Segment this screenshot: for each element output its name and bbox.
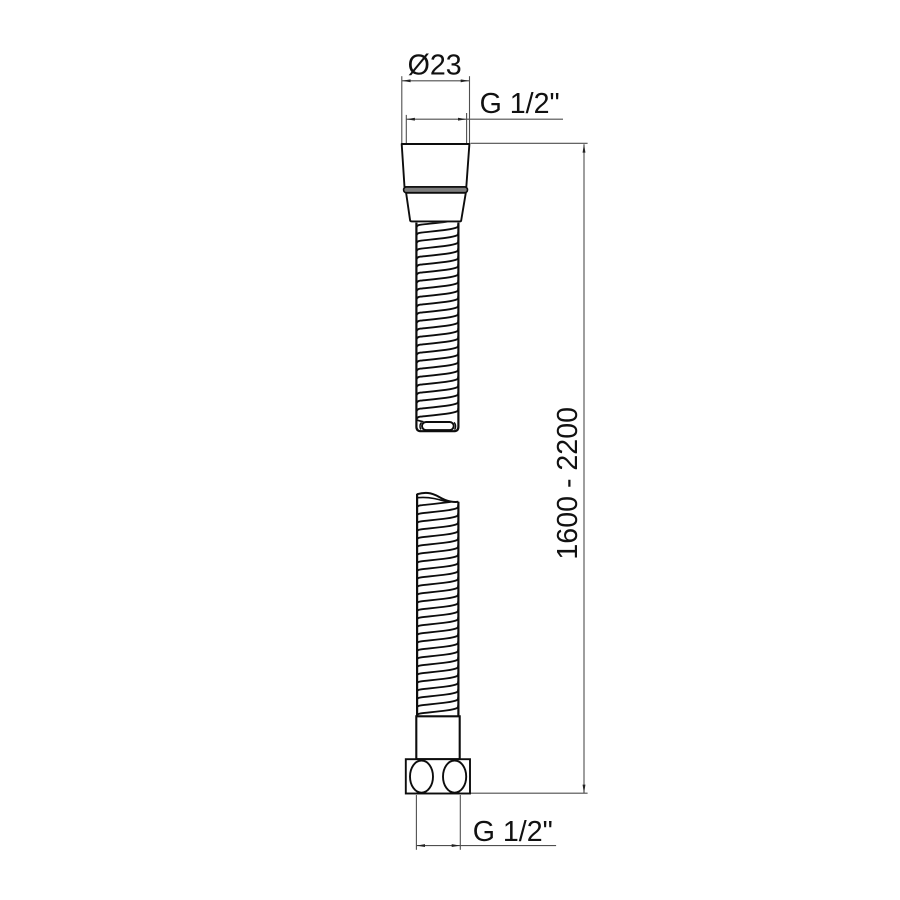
- svg-text:1600 - 2200: 1600 - 2200: [552, 407, 584, 560]
- svg-text:Ø23: Ø23: [408, 50, 462, 82]
- svg-text:G 1/2": G 1/2": [480, 88, 560, 120]
- svg-text:G 1/2": G 1/2": [473, 816, 553, 848]
